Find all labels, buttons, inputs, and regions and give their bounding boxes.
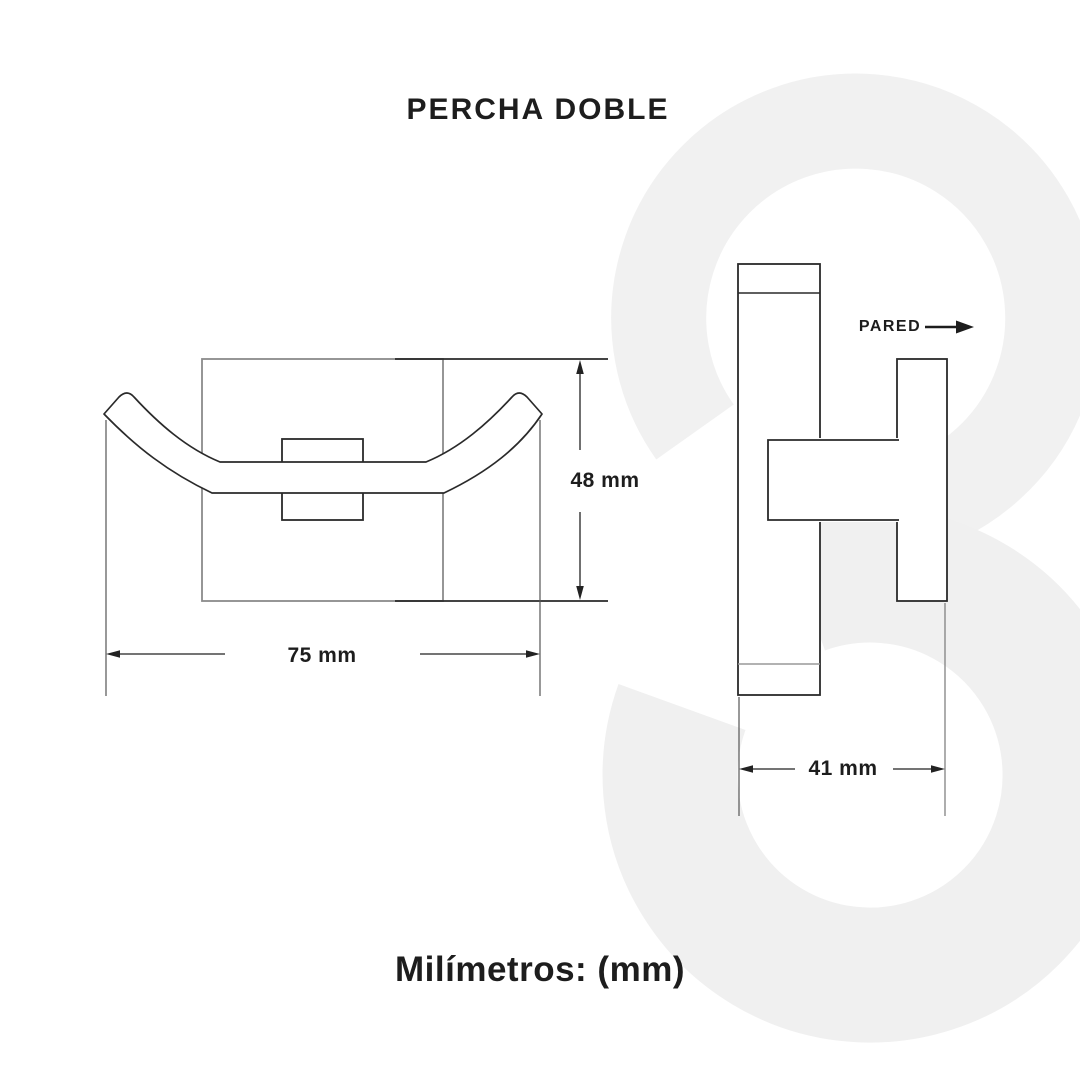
arrow-right-icon [931, 765, 945, 772]
height-dimension-label: 48 mm [570, 469, 639, 493]
page-title: PERCHA DOBLE [407, 93, 670, 127]
technical-drawing [0, 0, 1080, 1080]
front-view [104, 359, 542, 601]
wall-label: PARED [859, 318, 921, 336]
side-wall-pad [897, 359, 947, 601]
arrow-up-icon [576, 360, 584, 374]
arrow-left-icon [739, 765, 753, 772]
arrow-down-icon [576, 586, 584, 600]
arrow-right-icon [526, 650, 540, 657]
width-dimension-label: 75 mm [287, 644, 356, 668]
units-note: Milímetros: (mm) [395, 950, 685, 990]
diagram-page: PERCHA DOBLE 48 mm 75 mm 41 mm PARED Mil… [0, 0, 1080, 1080]
wall-arrow-head-icon [956, 321, 974, 334]
depth-dimension-label: 41 mm [808, 757, 877, 781]
wall-arrow [925, 321, 974, 334]
side-stem-fill [769, 438, 899, 522]
arrow-left-icon [106, 650, 120, 657]
watermark-logo [659, 121, 1070, 975]
